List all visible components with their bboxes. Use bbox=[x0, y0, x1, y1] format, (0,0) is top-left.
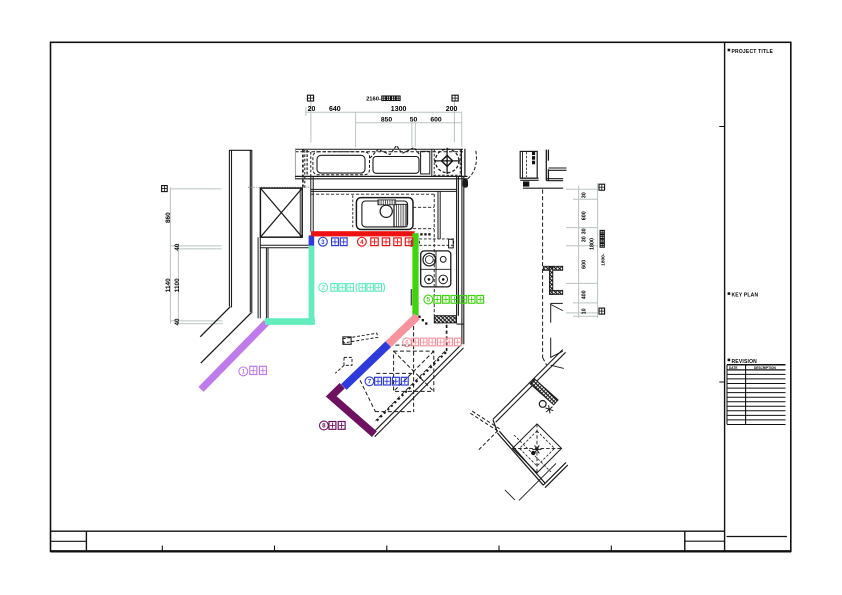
svg-text:10: 10 bbox=[581, 308, 587, 314]
svg-text:6: 6 bbox=[405, 340, 409, 347]
svg-text:30: 30 bbox=[581, 192, 587, 198]
svg-text:5: 5 bbox=[427, 297, 431, 304]
svg-text:600: 600 bbox=[430, 117, 442, 124]
svg-text:1140: 1140 bbox=[165, 278, 172, 292]
svg-text:1100: 1100 bbox=[174, 278, 181, 292]
svg-text:7: 7 bbox=[368, 379, 372, 386]
svg-text:600: 600 bbox=[581, 260, 587, 269]
svg-text:2: 2 bbox=[321, 285, 325, 292]
svg-text:KEY PLAN: KEY PLAN bbox=[732, 293, 759, 299]
svg-text:200: 200 bbox=[446, 106, 458, 113]
svg-text:1800: 1800 bbox=[589, 238, 595, 250]
svg-text:8: 8 bbox=[322, 423, 326, 430]
svg-text:REVISION: REVISION bbox=[732, 359, 758, 365]
svg-text:600: 600 bbox=[581, 211, 587, 220]
svg-text:4: 4 bbox=[360, 239, 364, 246]
svg-text:DATE: DATE bbox=[729, 366, 737, 370]
svg-text:3: 3 bbox=[321, 239, 325, 246]
svg-text:40: 40 bbox=[174, 318, 181, 326]
svg-text:50: 50 bbox=[410, 117, 418, 124]
svg-text:2160-: 2160- bbox=[366, 97, 381, 103]
svg-text:860: 860 bbox=[165, 212, 172, 223]
svg-text:640: 640 bbox=[329, 106, 341, 113]
svg-text:20: 20 bbox=[308, 106, 316, 113]
svg-text:1: 1 bbox=[242, 369, 246, 376]
svg-text:40: 40 bbox=[174, 243, 181, 251]
svg-text:400: 400 bbox=[581, 290, 587, 299]
svg-text:PROJECT TITLE: PROJECT TITLE bbox=[732, 49, 774, 55]
svg-text:1800-: 1800- bbox=[600, 253, 606, 266]
svg-text:DESCRIPTION: DESCRIPTION bbox=[754, 366, 776, 370]
svg-text:30: 30 bbox=[581, 236, 587, 242]
svg-text:850: 850 bbox=[381, 117, 393, 124]
svg-text:1300: 1300 bbox=[391, 106, 407, 113]
svg-text:30: 30 bbox=[581, 228, 587, 234]
